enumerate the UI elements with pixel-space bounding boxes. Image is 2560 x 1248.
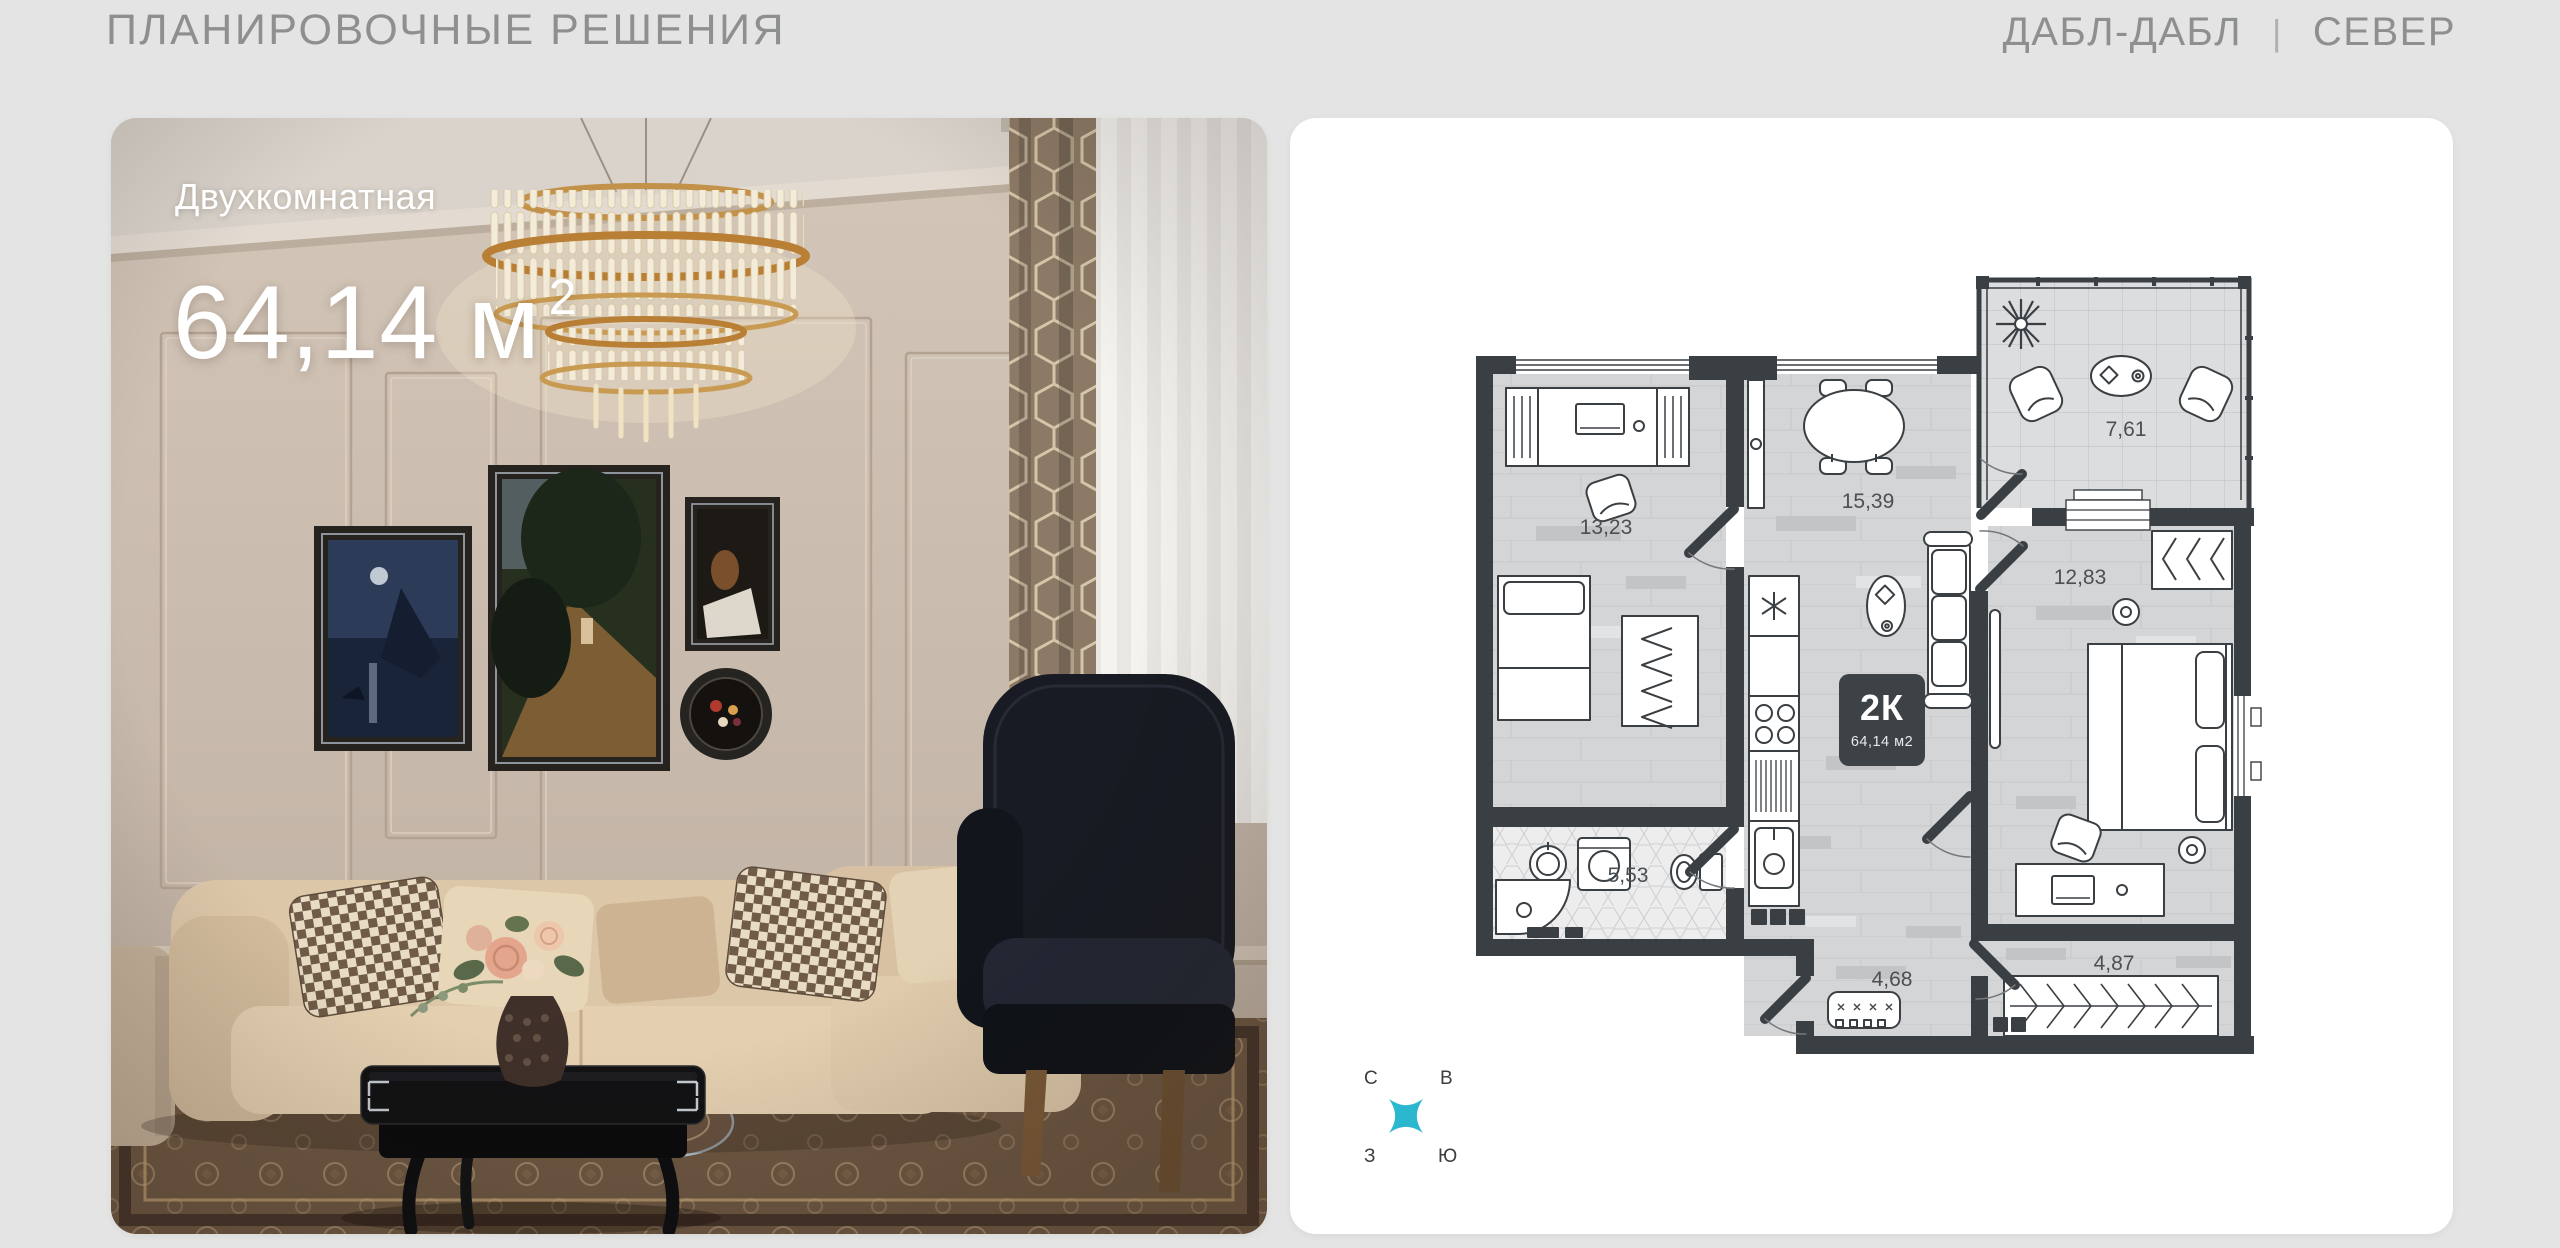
room-area-label-bathroom: 5,53	[1608, 864, 1649, 887]
apartment-type-label: Двухкомнатная	[175, 176, 436, 218]
room-area-label-hallway: 4,68	[1872, 968, 1913, 991]
desk-icon	[1506, 388, 1689, 466]
room-area-label-bedroom: 12,83	[2054, 566, 2107, 589]
section-name: СЕВЕР	[2313, 10, 2456, 55]
kitchen-counter-icon	[1749, 576, 1799, 906]
mirror-icon	[1990, 610, 2000, 748]
page-title: ПЛАНИРОВОЧНЫЕ РЕШЕНИЯ	[106, 6, 786, 55]
sofa-icon	[1924, 532, 1972, 708]
badge-type: 2К	[1860, 687, 1904, 728]
compass-west-label: З	[1364, 1146, 1376, 1168]
coffee-table-icon	[1867, 576, 1905, 636]
room-area-label-kitchen-living: 15,39	[1842, 490, 1895, 513]
area-superscript: 2	[549, 268, 578, 326]
hanger-rail-icon	[2004, 976, 2218, 1036]
header-divider: |	[2272, 12, 2283, 54]
plant-icon	[1996, 299, 2046, 349]
project-name: ДАБЛ-ДАБЛ	[2003, 10, 2242, 55]
shoe-bench-icon	[1828, 992, 1900, 1028]
floor-plan-card: 13,23 15,39 7,61 12,83 5,53 4,68 4,87 2К…	[1290, 118, 2453, 1234]
compass: С В З Ю	[1346, 1054, 1470, 1178]
bedroom-desk-icon	[2016, 864, 2164, 916]
room-area-label-bedroom-office: 13,23	[1580, 516, 1633, 539]
compass-north-label: С	[1364, 1068, 1378, 1090]
floor-plan: 13,23 15,39 7,61 12,83 5,53 4,68 4,87 2К…	[1476, 276, 2266, 1076]
bed-icon	[1498, 576, 1590, 720]
apartment-area: 64,14 м2	[173, 264, 577, 383]
wardrobe-icon	[1622, 616, 1698, 728]
room-area-label-corridor: 4,87	[2094, 952, 2135, 975]
double-bed-icon	[2088, 644, 2232, 830]
balcony-table-icon	[2091, 356, 2151, 396]
apartment-photo-card: Двухкомнатная 64,14 м2	[111, 118, 1267, 1234]
badge-area: 64,14 м2	[1851, 734, 1913, 750]
bedroom-wardrobe-icon	[2152, 531, 2232, 589]
room-area-label-loggia: 7,61	[2106, 418, 2147, 441]
compass-east-label: В	[1440, 1068, 1453, 1090]
compass-south-label: Ю	[1438, 1146, 1458, 1168]
area-value: 64,14	[173, 265, 438, 381]
compass-star-icon	[1382, 1092, 1430, 1140]
project-breadcrumb: ДАБЛ-ДАБЛ | СЕВЕР	[2003, 10, 2456, 55]
area-unit: м	[468, 265, 541, 381]
plan-badge: 2К 64,14 м2	[1839, 674, 1925, 766]
